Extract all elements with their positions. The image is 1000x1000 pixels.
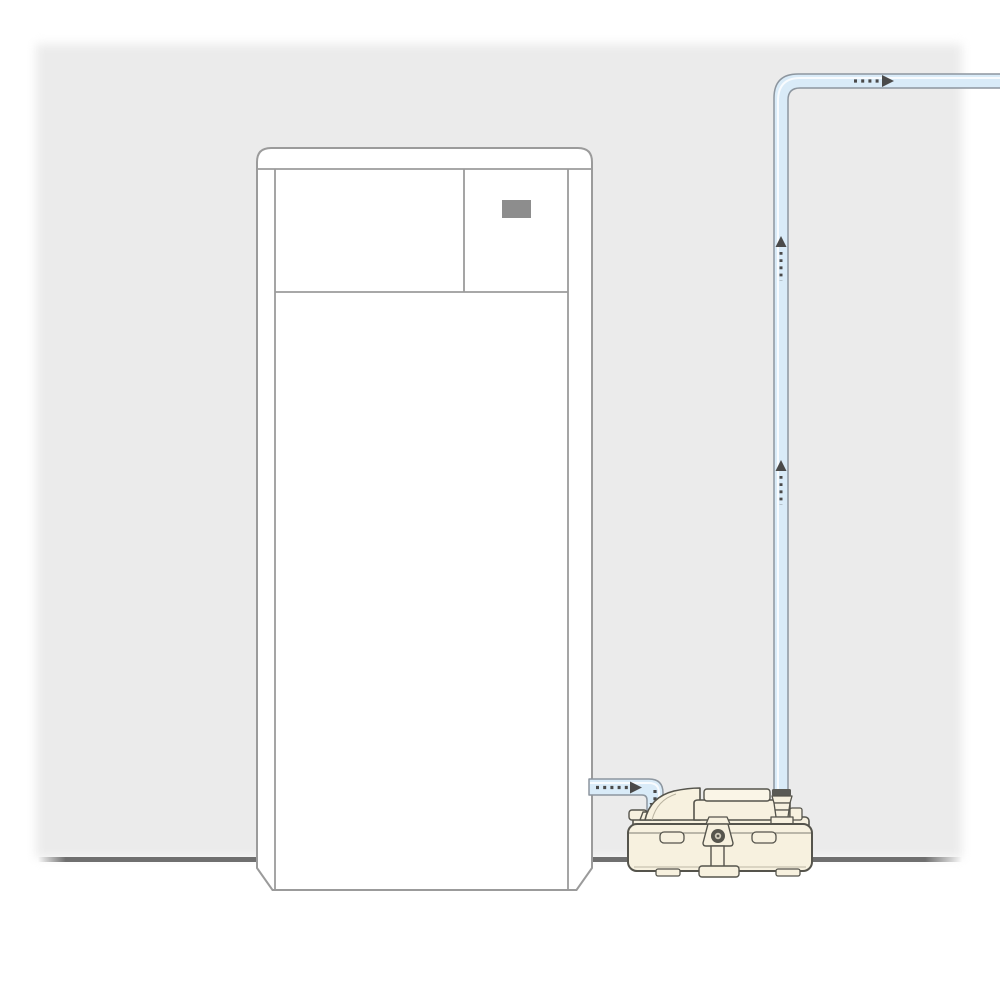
pump-latch-screw-dot-icon <box>717 835 720 838</box>
pump-slot-left <box>660 832 684 843</box>
riser-pipe-body <box>774 74 1000 792</box>
pump-foot-right <box>776 869 800 876</box>
riser-pipe <box>774 74 1000 792</box>
condensate-pump <box>628 788 812 877</box>
pump-foot-left <box>656 869 680 876</box>
illustration-canvas <box>0 0 1000 1000</box>
riser-pipe-highlight <box>778 78 1000 790</box>
outlet-barb-2 <box>774 803 790 810</box>
outlet-barb-1 <box>772 796 792 803</box>
outlet-barb-3 <box>775 810 789 817</box>
outlet-clamp <box>772 789 791 796</box>
boiler <box>257 148 592 890</box>
boiler-display <box>502 200 531 218</box>
outlet-base <box>771 817 793 824</box>
pump-latch-top <box>706 817 730 824</box>
boiler-body <box>257 148 592 890</box>
pump-slot-right <box>752 832 776 843</box>
pump-latch-stem <box>711 846 724 867</box>
scene-svg <box>0 0 1000 1000</box>
pump-latch-foot <box>699 866 739 877</box>
pump-head-top-plate <box>704 789 770 801</box>
